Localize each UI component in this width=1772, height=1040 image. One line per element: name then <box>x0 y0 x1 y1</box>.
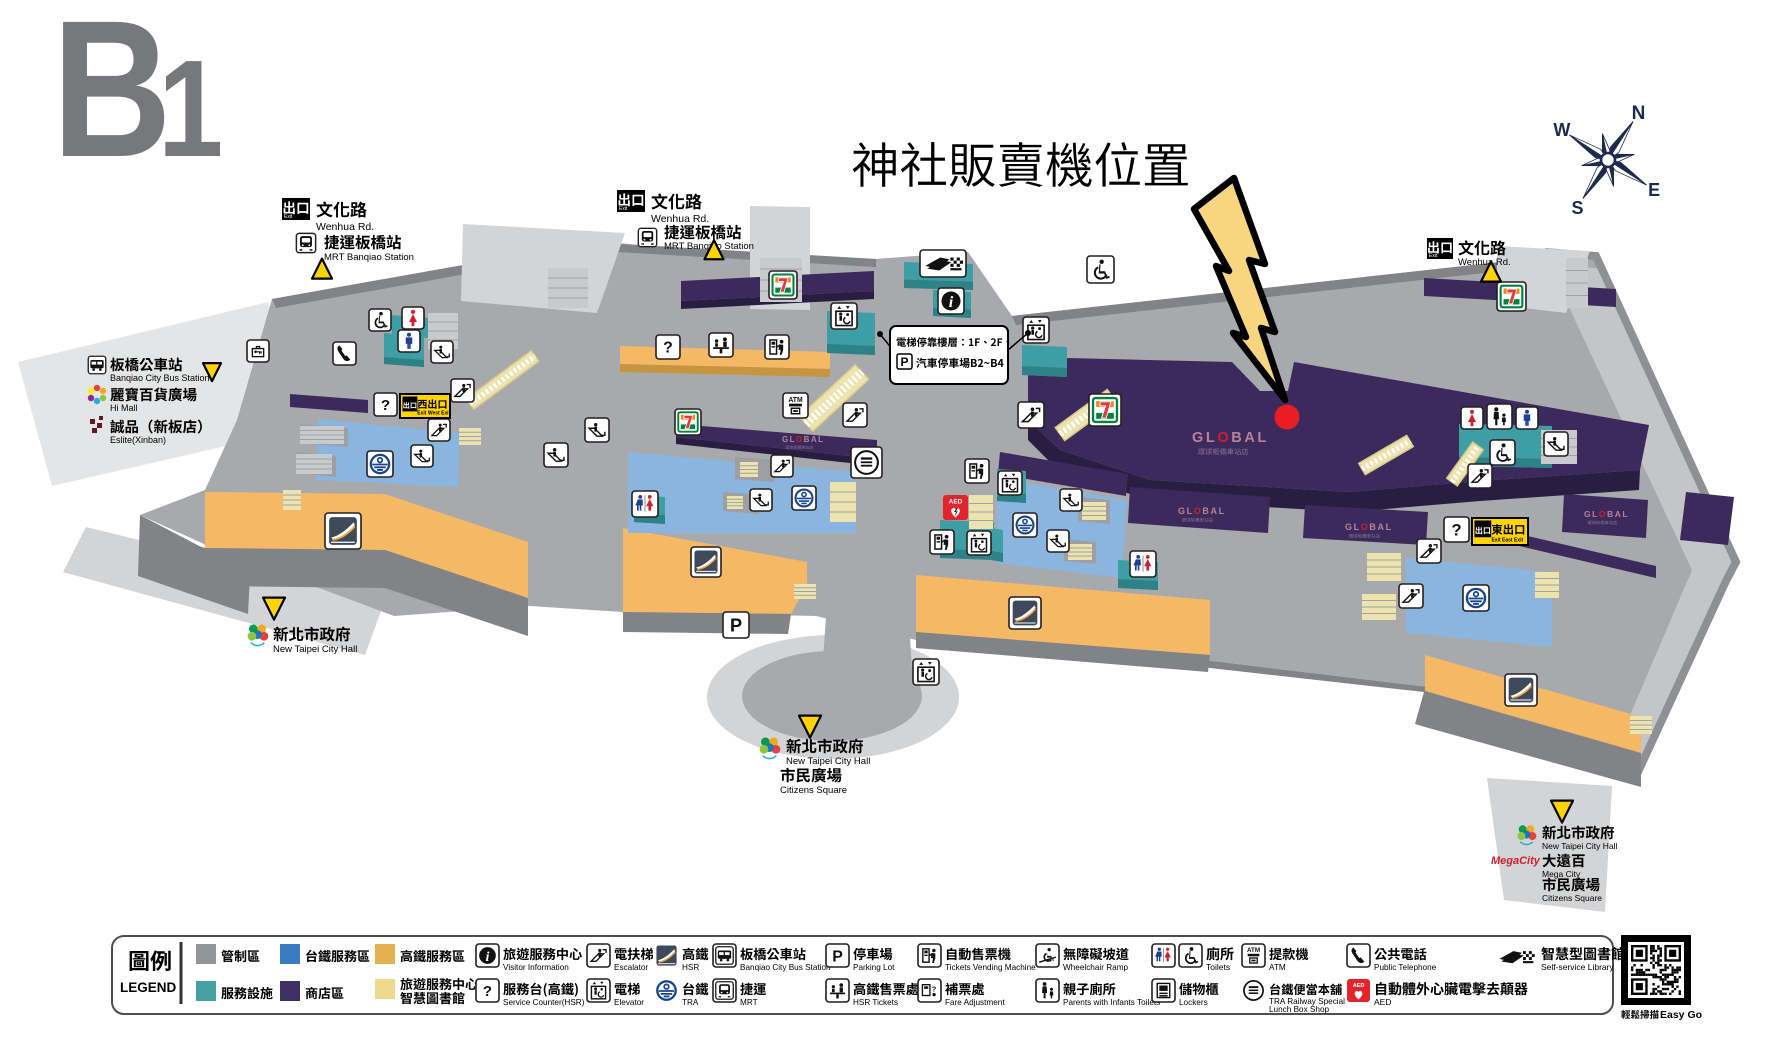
svg-text:GLOBAL: GLOBAL <box>782 435 824 444</box>
svg-text:LEGEND: LEGEND <box>120 980 177 995</box>
svg-text:1: 1 <box>158 32 223 186</box>
svg-text:AED: AED <box>1374 997 1391 1007</box>
svg-text:Mega City: Mega City <box>1542 869 1581 879</box>
svg-text:Hi Mall: Hi Mall <box>110 403 138 413</box>
svg-text:MegaCity: MegaCity <box>1491 855 1541 867</box>
svg-text:Toilets: Toilets <box>1206 962 1230 972</box>
svg-text:Banqiao City Bus Station: Banqiao City Bus Station <box>740 963 831 972</box>
svg-text:Eslite(Xinban): Eslite(Xinban) <box>110 435 166 445</box>
svg-text:GLOBAL: GLOBAL <box>1178 506 1226 516</box>
svg-text:Exit: Exit <box>284 214 293 220</box>
svg-text:Wenhua Rd.: Wenhua Rd. <box>316 221 374 233</box>
svg-text:TRA: TRA <box>682 998 699 1007</box>
svg-text:HSR Tickets: HSR Tickets <box>853 998 898 1007</box>
svg-text:Banqiao City Bus Station: Banqiao City Bus Station <box>110 373 210 383</box>
svg-text:MRT Banqiao Station: MRT Banqiao Station <box>324 252 414 263</box>
svg-text:New Taipei City Hall: New Taipei City Hall <box>786 756 870 767</box>
svg-text:Service Counter(HSR): Service Counter(HSR) <box>503 998 585 1007</box>
svg-text:Public Telephone: Public Telephone <box>1374 963 1437 972</box>
svg-text:Citizens Square: Citizens Square <box>1542 893 1602 903</box>
svg-text:Lunch Box Shop: Lunch Box Shop <box>1269 1005 1330 1014</box>
svg-text:Wenhua Rd.: Wenhua Rd. <box>651 213 709 225</box>
svg-text:AED: AED <box>1353 983 1365 989</box>
svg-text:P: P <box>900 355 908 369</box>
svg-text:New Taipei City Hall: New Taipei City Hall <box>273 644 357 655</box>
svg-text:Exit East Exit: Exit East Exit <box>1491 538 1523 544</box>
svg-text:Escalator: Escalator <box>614 963 648 972</box>
svg-text:Fare Adjustment: Fare Adjustment <box>945 998 1005 1007</box>
svg-text:Wheelchair Ramp: Wheelchair Ramp <box>1063 963 1129 972</box>
svg-text:Exit West Exit: Exit West Exit <box>417 411 450 417</box>
svg-text:Tickets Vending Machine: Tickets Vending Machine <box>945 963 1036 972</box>
svg-text:Parents with Infants Toilets: Parents with Infants Toilets <box>1063 998 1160 1007</box>
svg-text:Visitor Information: Visitor Information <box>503 963 569 972</box>
svg-text:S: S <box>1571 198 1583 218</box>
svg-text:AED: AED <box>949 499 963 506</box>
svg-text:Wenhua Rd.: Wenhua Rd. <box>1458 257 1511 268</box>
svg-text:GLOBAL: GLOBAL <box>1192 430 1269 446</box>
svg-text:Easy Go: Easy Go <box>1660 1009 1702 1021</box>
svg-text:Parking Lot: Parking Lot <box>853 963 895 972</box>
svg-text:GLOBAL: GLOBAL <box>1584 509 1629 519</box>
svg-text:Self-service Library: Self-service Library <box>1541 962 1614 972</box>
svg-text:Exit: Exit <box>619 206 628 212</box>
svg-text:N: N <box>1632 103 1646 124</box>
svg-text:W: W <box>1553 120 1570 140</box>
svg-text:MRT: MRT <box>740 998 758 1007</box>
svg-text:Citizens Square: Citizens Square <box>780 785 847 796</box>
svg-text:B: B <box>52 0 172 198</box>
svg-text:ATM: ATM <box>1269 963 1286 972</box>
svg-text:Elevator: Elevator <box>614 998 644 1007</box>
svg-text:Lockers: Lockers <box>1179 998 1208 1007</box>
svg-text:E: E <box>1648 180 1660 200</box>
svg-text:Exit: Exit <box>1429 253 1438 259</box>
svg-text:HSR: HSR <box>682 963 699 972</box>
svg-text:New Taipei City Hall: New Taipei City Hall <box>1542 841 1618 851</box>
svg-text:GLOBAL: GLOBAL <box>1345 522 1393 532</box>
